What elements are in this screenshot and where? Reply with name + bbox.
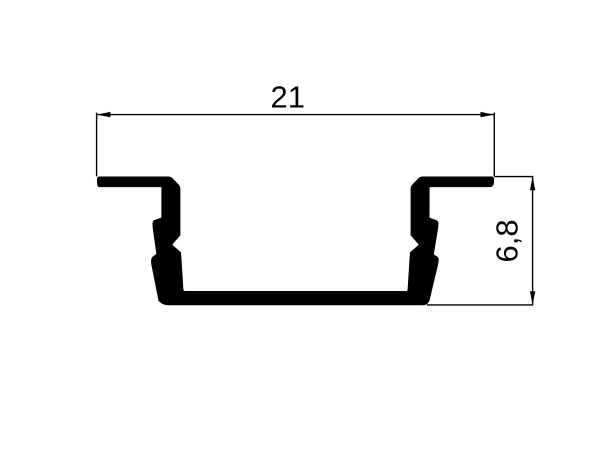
svg-text:6,8: 6,8 (490, 219, 525, 262)
svg-text:21: 21 (270, 80, 304, 115)
